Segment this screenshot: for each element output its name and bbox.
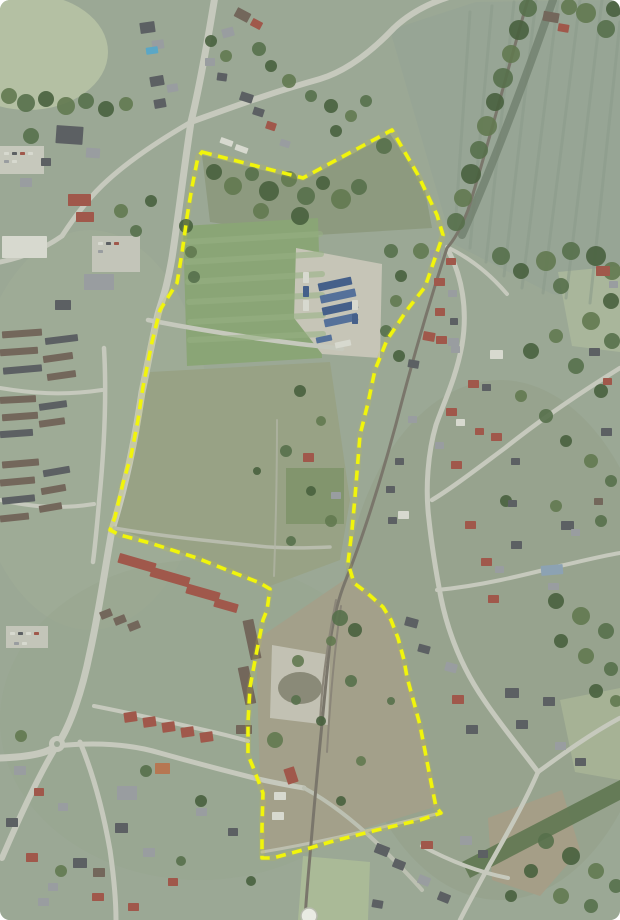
- tree: [351, 179, 367, 195]
- building: [594, 498, 603, 505]
- tree: [332, 610, 348, 626]
- building: [38, 898, 49, 906]
- tree: [259, 181, 279, 201]
- building: [482, 384, 491, 391]
- building: [388, 517, 397, 524]
- building: [196, 808, 207, 816]
- building: [446, 258, 456, 265]
- tree: [316, 716, 326, 726]
- tree: [515, 390, 527, 402]
- tree: [220, 50, 232, 62]
- building: [2, 236, 47, 258]
- tree: [291, 695, 301, 705]
- tree: [57, 97, 75, 115]
- building: [488, 595, 499, 603]
- tree: [145, 195, 157, 207]
- building: [123, 711, 137, 723]
- tree: [603, 293, 619, 309]
- tree: [360, 95, 372, 107]
- building: [475, 428, 484, 435]
- building: [4, 152, 9, 155]
- building: [491, 433, 502, 441]
- tree: [130, 225, 142, 237]
- tree: [576, 3, 596, 23]
- tree: [548, 593, 564, 609]
- road-junction-island: [54, 741, 60, 747]
- building: [495, 566, 504, 573]
- tree: [286, 536, 296, 546]
- tree: [206, 164, 222, 180]
- tree: [572, 607, 590, 625]
- tree: [538, 833, 554, 849]
- tree: [294, 385, 306, 397]
- building: [128, 903, 139, 911]
- building: [98, 242, 103, 245]
- building: [303, 300, 309, 311]
- tree: [461, 164, 481, 184]
- tree: [562, 242, 580, 260]
- building: [115, 823, 128, 833]
- tree: [331, 189, 351, 209]
- building: [435, 442, 444, 449]
- building: [541, 564, 564, 576]
- tree: [550, 500, 562, 512]
- building: [205, 58, 215, 66]
- building: [450, 318, 458, 325]
- building: [331, 492, 341, 499]
- building: [303, 272, 309, 283]
- tree: [326, 636, 336, 646]
- tree: [589, 684, 603, 698]
- tree: [393, 350, 405, 362]
- tree: [560, 435, 572, 447]
- tree: [604, 662, 618, 676]
- building: [14, 642, 19, 645]
- building: [228, 828, 238, 836]
- building: [456, 419, 465, 426]
- building: [555, 742, 566, 750]
- tree: [114, 204, 128, 218]
- building: [41, 158, 51, 166]
- building: [34, 632, 39, 635]
- gas-holder-tank: [301, 908, 317, 920]
- building: [543, 697, 555, 706]
- building: [55, 300, 71, 310]
- tree: [395, 270, 407, 282]
- building: [465, 521, 476, 529]
- tree: [584, 899, 598, 913]
- building: [199, 731, 213, 743]
- tree: [578, 648, 594, 664]
- building: [84, 274, 114, 290]
- building: [168, 878, 178, 886]
- building: [303, 453, 314, 462]
- building: [421, 841, 433, 849]
- tree: [267, 732, 283, 748]
- building: [93, 868, 105, 877]
- building: [571, 529, 580, 536]
- tree: [252, 42, 266, 56]
- building: [180, 726, 194, 738]
- building: [86, 148, 101, 159]
- building: [106, 242, 111, 245]
- tree: [224, 177, 242, 195]
- tree: [253, 203, 269, 219]
- building: [601, 428, 612, 436]
- building: [448, 290, 457, 297]
- building: [466, 725, 478, 734]
- tree: [282, 74, 296, 88]
- tree: [536, 251, 556, 271]
- building: [478, 850, 488, 858]
- tree: [586, 246, 606, 266]
- building: [4, 160, 9, 163]
- tree: [598, 623, 614, 639]
- tree: [413, 243, 429, 259]
- tree: [523, 343, 539, 359]
- tree: [98, 101, 114, 117]
- building: [68, 194, 91, 206]
- building: [596, 266, 610, 276]
- building: [451, 461, 462, 469]
- building: [603, 378, 612, 385]
- building: [408, 416, 417, 423]
- building: [561, 521, 574, 530]
- building: [448, 338, 459, 346]
- tree: [205, 35, 217, 47]
- building: [303, 286, 309, 297]
- building: [352, 314, 358, 324]
- tree: [316, 416, 326, 426]
- tree: [554, 634, 568, 648]
- building: [505, 688, 519, 698]
- building: [26, 853, 38, 862]
- tree: [509, 20, 529, 40]
- tree: [15, 730, 27, 742]
- building: [20, 152, 25, 155]
- tree: [562, 847, 580, 865]
- building: [117, 786, 137, 800]
- building: [548, 583, 559, 590]
- tree: [23, 128, 39, 144]
- building: [114, 242, 119, 245]
- building: [490, 350, 503, 359]
- tree: [597, 20, 615, 38]
- school-parking: [92, 236, 140, 272]
- building: [14, 766, 26, 775]
- building: [352, 300, 358, 310]
- building: [511, 458, 520, 465]
- building: [161, 721, 175, 733]
- tree: [195, 795, 207, 807]
- building: [34, 788, 44, 796]
- tree: [316, 176, 330, 190]
- building: [272, 812, 284, 820]
- building: [92, 893, 104, 901]
- building: [451, 346, 460, 353]
- tree: [539, 409, 553, 423]
- building: [516, 720, 528, 729]
- tree: [553, 888, 569, 904]
- tree: [387, 697, 395, 705]
- building: [609, 281, 618, 288]
- aerial-photo: [0, 0, 620, 920]
- building: [460, 836, 472, 845]
- building: [452, 695, 464, 704]
- tree: [38, 91, 54, 107]
- tree: [176, 856, 186, 866]
- building: [139, 21, 155, 34]
- building: [589, 348, 600, 356]
- tree: [185, 246, 197, 258]
- tree: [336, 796, 346, 806]
- tree: [553, 278, 569, 294]
- tree: [305, 90, 317, 102]
- aerial-photo-canvas: [0, 0, 620, 920]
- tree: [568, 358, 584, 374]
- tree: [246, 876, 256, 886]
- building: [143, 848, 155, 857]
- tree: [345, 675, 357, 687]
- tree: [119, 97, 133, 111]
- building: [435, 308, 445, 316]
- tree: [345, 110, 357, 122]
- tree: [493, 68, 513, 88]
- tree: [447, 213, 465, 231]
- tree: [253, 467, 261, 475]
- building: [18, 632, 23, 635]
- tree: [348, 623, 362, 637]
- tree: [492, 247, 510, 265]
- building: [155, 763, 170, 774]
- building: [73, 858, 87, 868]
- tree: [17, 94, 35, 112]
- tree: [588, 863, 604, 879]
- building: [216, 72, 227, 81]
- building: [28, 152, 33, 155]
- tree: [477, 116, 497, 136]
- building: [446, 408, 457, 416]
- tree: [325, 515, 337, 527]
- tree: [486, 93, 504, 111]
- parking-bottom-left: [6, 626, 48, 648]
- building: [12, 152, 17, 155]
- building: [508, 500, 517, 507]
- building: [55, 125, 83, 145]
- tree: [595, 515, 607, 527]
- tree: [605, 475, 617, 487]
- tree: [470, 141, 488, 159]
- tree: [140, 765, 152, 777]
- tree: [604, 333, 620, 349]
- building: [436, 336, 447, 344]
- building: [468, 380, 479, 388]
- tree: [505, 890, 517, 902]
- building: [6, 818, 18, 827]
- building: [98, 250, 103, 253]
- tree: [356, 756, 366, 766]
- tree: [513, 263, 529, 279]
- tree: [324, 99, 338, 113]
- tree: [594, 384, 608, 398]
- tree: [297, 187, 315, 205]
- building: [48, 883, 58, 891]
- tree: [291, 207, 309, 225]
- building: [142, 716, 156, 728]
- building: [481, 558, 492, 566]
- tree: [584, 454, 598, 468]
- building: [58, 803, 68, 811]
- building: [398, 511, 409, 519]
- tree: [265, 60, 277, 72]
- building: [511, 541, 522, 549]
- tree: [384, 244, 398, 258]
- tree: [582, 312, 600, 330]
- tree: [306, 486, 316, 496]
- tree: [330, 125, 342, 137]
- tree: [55, 865, 67, 877]
- tree: [1, 88, 17, 104]
- building: [12, 160, 17, 163]
- tree: [78, 93, 94, 109]
- tree: [280, 445, 292, 457]
- building: [10, 632, 15, 635]
- building: [274, 792, 286, 800]
- tree: [188, 271, 200, 283]
- building: [76, 212, 94, 222]
- building: [20, 178, 32, 187]
- building: [395, 458, 404, 465]
- tree: [390, 295, 402, 307]
- building: [434, 278, 445, 286]
- tree: [292, 655, 304, 667]
- building: [575, 758, 586, 766]
- tree: [454, 189, 472, 207]
- building: [22, 642, 27, 645]
- building: [386, 486, 395, 493]
- tree: [502, 45, 520, 63]
- building: [26, 632, 31, 635]
- tree: [549, 329, 563, 343]
- tree: [524, 864, 538, 878]
